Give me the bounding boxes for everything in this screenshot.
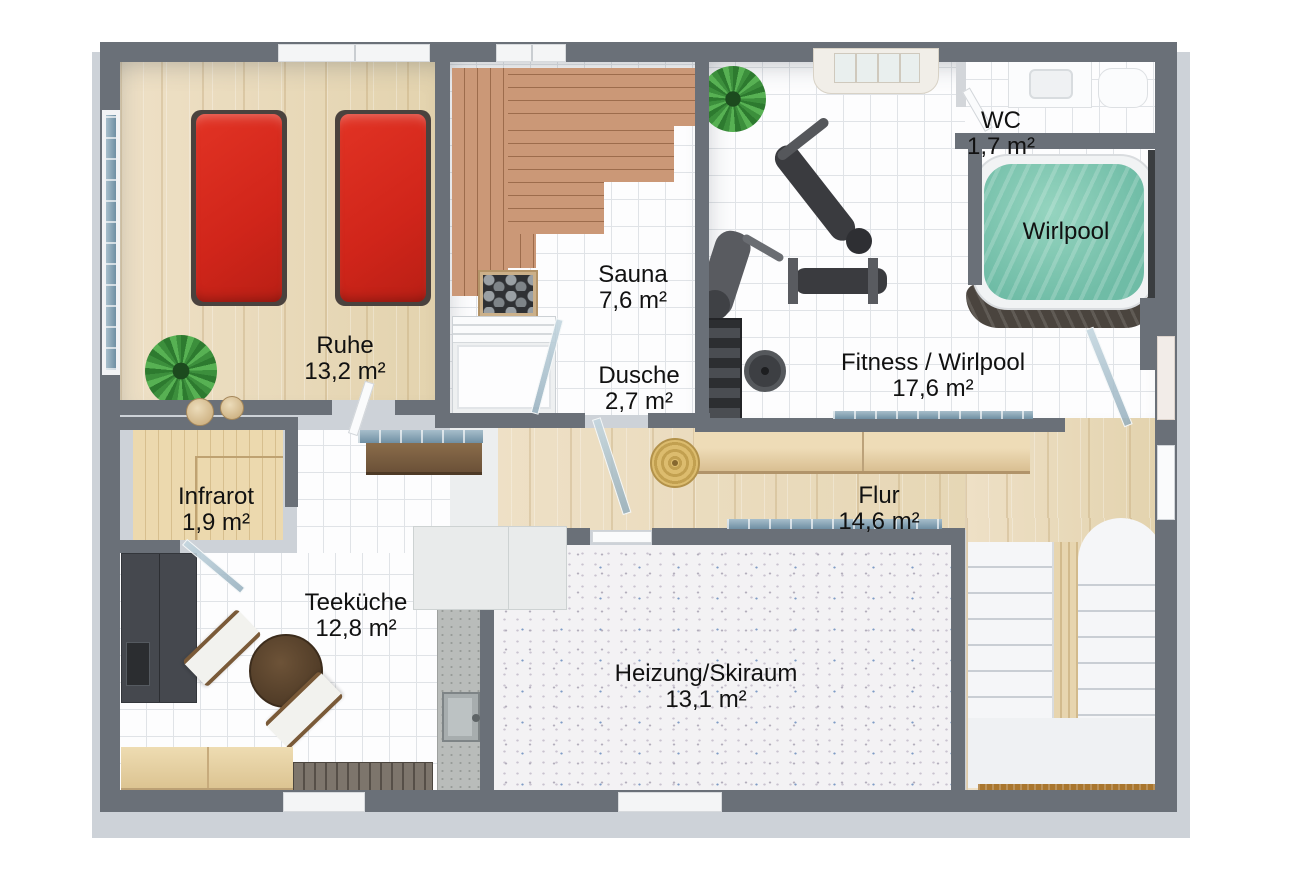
wall-infrarot-bottom xyxy=(118,540,180,553)
wall-exterior-top xyxy=(100,42,1177,62)
room-label-teekueche: Teeküche 12,8 m² xyxy=(305,590,408,642)
wall-exterior-right xyxy=(1155,42,1177,812)
window-lightwell-fitness xyxy=(813,48,939,94)
wicker-stool-center xyxy=(672,460,678,466)
window-top-ruhe xyxy=(278,44,430,62)
kitchen-sink xyxy=(442,692,480,742)
room-area: 2,7 m² xyxy=(598,389,679,415)
kitchen-tall-cabinet xyxy=(121,553,197,703)
teekueche-sideboard xyxy=(366,443,482,475)
room-name: Teeküche xyxy=(305,590,408,616)
towel-roll-2 xyxy=(220,396,244,420)
room-label-heizung: Heizung/Skiraum 13,1 m² xyxy=(615,661,798,713)
sauna-bench-step xyxy=(508,234,536,268)
room-label-wc: WC 1,7 m² xyxy=(967,108,1035,160)
wall-wc-partition xyxy=(956,62,966,107)
teekueche-bench xyxy=(121,747,293,791)
lounger-2 xyxy=(340,114,426,302)
window-left-ruhe-glass xyxy=(106,115,116,370)
kitchen-cabinet-door-line xyxy=(159,554,160,702)
room-label-fitness: Fitness / Wirlpool 17,6 m² xyxy=(841,350,1025,402)
kitchen-sink-basin xyxy=(448,698,472,736)
incline-bench-foot xyxy=(846,228,872,254)
room-label-ruhe: Ruhe 13,2 m² xyxy=(304,333,385,385)
floor-plan: Ruhe 13,2 m² Sauna 7,6 m² Dusche 2,7 m² … xyxy=(0,0,1297,869)
room-label-infrarot: Infrarot 1,9 m² xyxy=(178,484,254,536)
door-right-flur xyxy=(1157,445,1175,520)
lightwell-glazing xyxy=(834,53,920,83)
room-label-sauna: Sauna 7,6 m² xyxy=(598,262,667,314)
teekueche-bench-divider xyxy=(207,747,209,788)
weight-bench-rack xyxy=(868,258,878,304)
weight-plate xyxy=(744,350,786,392)
stairs-stringer xyxy=(1054,542,1078,718)
wall-heizung-right xyxy=(951,528,965,790)
room-label-dusche: Dusche 2,7 m² xyxy=(598,363,679,415)
room-area: 17,6 m² xyxy=(841,376,1025,402)
radiator xyxy=(293,762,433,792)
window-top-sauna xyxy=(496,44,566,62)
heizung-cabinet-line xyxy=(508,527,509,609)
fixture-name: Wirlpool xyxy=(1023,219,1110,245)
glazing-teekueche-wall xyxy=(358,430,483,443)
window-bottom-heizung xyxy=(618,792,722,812)
room-area: 12,8 m² xyxy=(305,616,408,642)
room-label-flur: Flur 14,6 m² xyxy=(838,483,919,535)
door-leaf-heizung xyxy=(592,531,652,543)
room-name: Fitness / Wirlpool xyxy=(841,350,1025,376)
room-name: Sauna xyxy=(598,262,667,288)
wall-ruhe-sauna xyxy=(435,62,450,415)
wall-fitness-right-stub xyxy=(1140,298,1155,370)
window-top-sauna-mullion xyxy=(531,45,533,61)
wc-toilet xyxy=(1098,68,1148,108)
window-right-fitness xyxy=(1157,336,1175,420)
sauna-stones xyxy=(483,275,533,313)
sauna-bench-left xyxy=(452,68,508,296)
wall-fitness-bottom xyxy=(695,418,1065,432)
weight-bench-bar xyxy=(788,258,798,304)
glazing-flur-top-wall xyxy=(833,411,1033,419)
wicker-stool xyxy=(650,438,700,488)
weight-plate-hub xyxy=(761,367,769,375)
kitchen-faucet xyxy=(472,714,480,722)
room-name: Ruhe xyxy=(304,333,385,359)
wc-vanity xyxy=(1008,60,1092,108)
wc-sink-basin xyxy=(1029,69,1073,99)
room-area: 13,2 m² xyxy=(304,359,385,385)
room-area: 1,9 m² xyxy=(178,510,254,536)
window-bottom-teekueche xyxy=(283,792,365,812)
plant-fitness xyxy=(700,66,766,132)
wall-infrarot-right xyxy=(285,417,298,507)
sauna-heater xyxy=(478,270,538,318)
lounger-1 xyxy=(196,114,282,302)
kitchen-oven-front xyxy=(126,642,150,686)
room-area: 1,7 m² xyxy=(967,134,1035,160)
stairs-flight-left xyxy=(968,542,1054,718)
room-name: Flur xyxy=(838,483,919,509)
heizung-corner-cabinet xyxy=(413,526,567,610)
shower-shelf xyxy=(453,317,555,343)
room-name: WC xyxy=(967,108,1035,134)
window-top-ruhe-mullion xyxy=(354,45,356,61)
room-area: 7,6 m² xyxy=(598,288,667,314)
plant-ruhe xyxy=(145,335,217,407)
room-name: Infrarot xyxy=(178,484,254,510)
infrared-bench-edge xyxy=(195,456,283,458)
room-area: 13,1 m² xyxy=(615,687,798,713)
towel-roll-1 xyxy=(186,398,214,426)
whirlpool-label: Wirlpool xyxy=(1023,219,1110,245)
room-name: Dusche xyxy=(598,363,679,389)
stairs-landing xyxy=(968,718,1165,788)
room-area: 14,6 m² xyxy=(838,509,919,535)
wall-sauna-fitness xyxy=(695,62,709,418)
room-name: Heizung/Skiraum xyxy=(615,661,798,687)
wall-dusche-bottom-left xyxy=(435,413,585,428)
